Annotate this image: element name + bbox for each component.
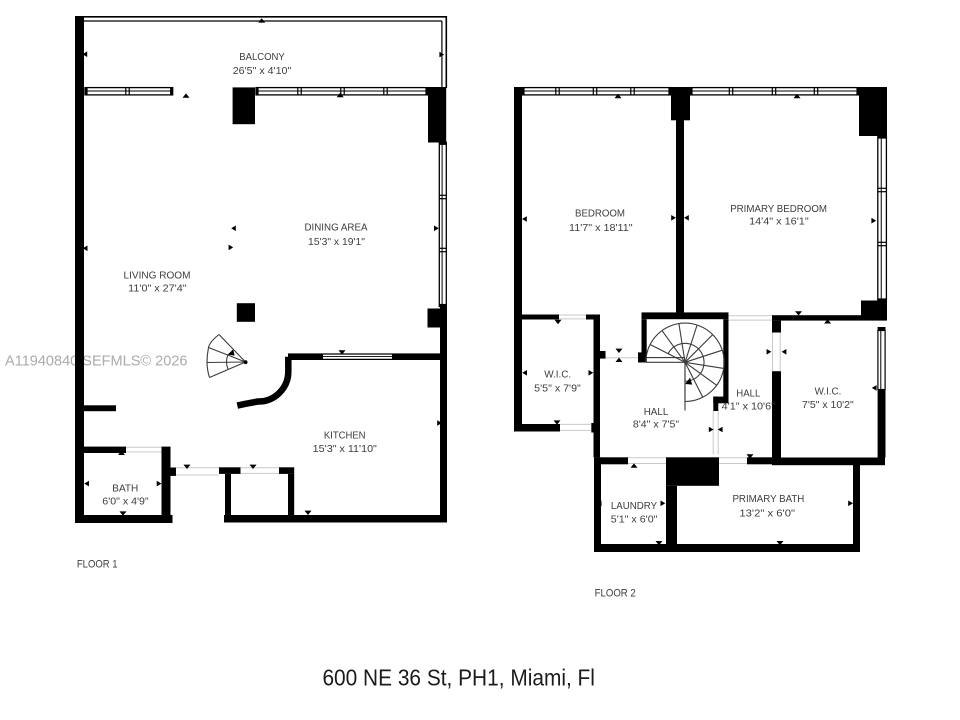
svg-text:11'0" x 27'4": 11'0" x 27'4" xyxy=(128,283,187,294)
svg-text:15'3" x 19'1": 15'3" x 19'1" xyxy=(308,237,365,248)
svg-text:LIVING ROOM: LIVING ROOM xyxy=(124,270,191,281)
svg-text:HALL: HALL xyxy=(736,388,760,399)
svg-text:8'4" x 7'5": 8'4" x 7'5" xyxy=(633,420,680,431)
svg-text:14'4" x 16'1": 14'4" x 16'1" xyxy=(749,216,809,227)
svg-text:HALL: HALL xyxy=(644,407,669,418)
svg-text:PRIMARY BATH: PRIMARY BATH xyxy=(732,494,804,505)
svg-text:4'1" x 10'6": 4'1" x 10'6" xyxy=(722,401,776,412)
svg-text:PRIMARY BEDROOM: PRIMARY BEDROOM xyxy=(730,204,827,215)
svg-text:BATH: BATH xyxy=(112,484,138,495)
svg-text:5'5" x 7'9": 5'5" x 7'9" xyxy=(534,383,581,394)
svg-text:LAUNDRY: LAUNDRY xyxy=(611,501,657,512)
svg-text:BEDROOM: BEDROOM xyxy=(575,209,625,220)
svg-text:15'3" x 11'10": 15'3" x 11'10" xyxy=(313,444,378,455)
svg-text:KITCHEN: KITCHEN xyxy=(324,430,366,441)
svg-text:FLOOR 2: FLOOR 2 xyxy=(595,587,636,599)
svg-text:A11940840 SEFMLS© 2026: A11940840 SEFMLS© 2026 xyxy=(5,354,188,370)
svg-text:600 NE 36 St, PH1, Miami, Fl: 600 NE 36 St, PH1, Miami, Fl xyxy=(322,665,595,691)
svg-text:5'1" x 6'0": 5'1" x 6'0" xyxy=(611,515,658,526)
svg-text:W.I.C.: W.I.C. xyxy=(815,386,842,397)
svg-text:26'5" x 4'10": 26'5" x 4'10" xyxy=(233,66,292,77)
svg-text:BALCONY: BALCONY xyxy=(239,52,285,63)
svg-text:6'0" x 4'9": 6'0" x 4'9" xyxy=(102,497,149,508)
svg-text:DINING AREA: DINING AREA xyxy=(304,223,367,234)
svg-text:11'7" x 18'11": 11'7" x 18'11" xyxy=(569,223,633,234)
svg-text:13'2" x 6'0": 13'2" x 6'0" xyxy=(739,509,795,520)
svg-text:W.I.C.: W.I.C. xyxy=(544,370,571,381)
svg-text:7'5" x 10'2": 7'5" x 10'2" xyxy=(802,400,854,411)
svg-text:FLOOR 1: FLOOR 1 xyxy=(77,559,118,571)
